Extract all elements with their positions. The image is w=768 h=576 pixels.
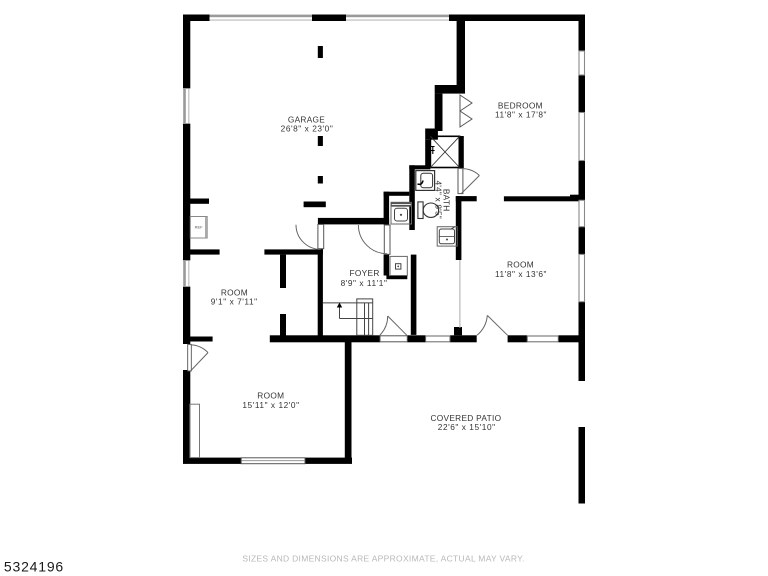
svg-text:15'11" x 12'0": 15'11" x 12'0" [242,400,299,410]
svg-text:5324196: 5324196 [4,558,64,574]
svg-text:SIZES AND DIMENSIONS ARE APPRO: SIZES AND DIMENSIONS ARE APPROXIMATE, AC… [242,554,524,564]
svg-text:FOYER: FOYER [350,268,380,278]
svg-text:11'8" x 13'6": 11'8" x 13'6" [495,269,547,279]
svg-text:11'8" x 17'8": 11'8" x 17'8" [495,110,547,120]
svg-text:9'1" x 7'11": 9'1" x 7'11" [211,297,258,307]
svg-text:ROOM: ROOM [257,390,284,400]
svg-text:8'9" x 11'1": 8'9" x 11'1" [341,278,388,288]
svg-text:22'6" x 15'10": 22'6" x 15'10" [438,422,496,432]
svg-text:26'8" x 23'0": 26'8" x 23'0" [281,124,334,134]
svg-text:4'4" x 8'5": 4'4" x 8'5" [433,180,443,218]
svg-text:REF: REF [195,225,204,230]
